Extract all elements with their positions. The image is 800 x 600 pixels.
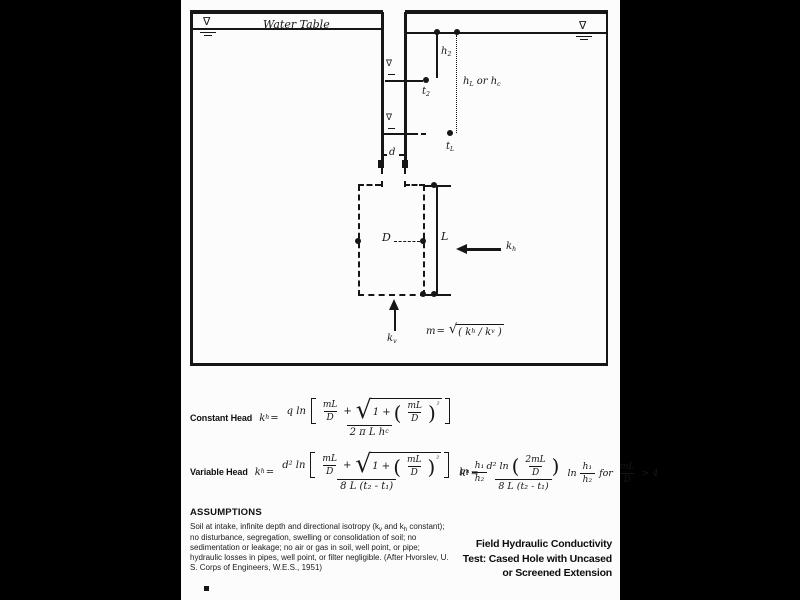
- radical: √ 1 + ( mLD ) ²: [355, 452, 441, 478]
- kv-arrow-shaft: [394, 310, 397, 331]
- water-level-icon: ∇: [579, 20, 586, 31]
- t2-level-line: [385, 80, 423, 82]
- hl-hc-dimension-line: [456, 35, 457, 133]
- tl-level-dash: [421, 133, 426, 135]
- scan-artifact-dot: [204, 586, 209, 591]
- ref-dot: [454, 29, 460, 35]
- kv-label: kv: [387, 333, 397, 345]
- radical-icon: √: [356, 398, 372, 422]
- length-label: L: [441, 230, 448, 243]
- t2-label: t2: [422, 86, 430, 98]
- kv-arrow-icon: [389, 299, 399, 310]
- casing-shoe-left: [378, 160, 384, 168]
- figure-title-line1: Field Hydraulic Conductivity: [430, 537, 612, 552]
- frame-bottom: [190, 363, 608, 366]
- bracket-left: [310, 452, 315, 478]
- tl-level-line: [384, 133, 418, 135]
- variable-head-equation: Variable Head kh = d² ln mLD + √ 1 + ( m…: [190, 448, 489, 496]
- water-level-icon: ∇: [203, 16, 210, 27]
- casing-wall-right: [404, 12, 407, 166]
- figure-title-line2: Test: Cased Hole with Uncased: [430, 552, 612, 567]
- anisotropy-equation: m = √ ( kh / kv ): [426, 324, 505, 338]
- constant-head-equation: Constant Head kh = q ln mLD + √ 1 + ( mL…: [190, 394, 457, 442]
- casing-wall-left: [381, 12, 384, 166]
- extension-box-top-left: [358, 184, 381, 186]
- d-tick: [382, 154, 387, 156]
- extension-box-bottom: [358, 294, 426, 296]
- h2-dimension-line: [436, 34, 438, 78]
- casing-shoe-right: [402, 160, 408, 168]
- frame-right: [606, 10, 609, 366]
- frame-top-right: [405, 10, 608, 14]
- assumptions-text: Soil at intake, infinite depth and direc…: [190, 522, 453, 573]
- figure-canvas: ∇ Water Table ∇ ∇ t2 h2 hL or hc ∇ tL d …: [0, 0, 800, 600]
- figure-title-line3: or Screened Extension: [430, 566, 612, 581]
- water-mark-dash: [388, 128, 395, 129]
- kh-label: kh: [506, 241, 516, 253]
- kh-arrow-icon: [456, 244, 467, 254]
- assumptions-header: ASSUMPTIONS: [190, 507, 262, 518]
- ref-dot: [423, 77, 429, 83]
- hl-hc-label: hL or hc: [463, 76, 501, 88]
- bracket-right: [445, 398, 450, 424]
- bracket-left: [311, 398, 316, 424]
- ref-dot: [447, 130, 453, 136]
- main-fraction: q ln mLD + √ 1 + ( mLD ) ² 2 π L hc: [284, 398, 455, 438]
- radical: √ ( kh / kv ): [449, 324, 504, 338]
- radical: √ 1 + ( mLD ) ²: [356, 398, 442, 424]
- main-fraction: d² ln mLD + √ 1 + ( mLD ) ² 8 L (t₂ - t₁…: [279, 452, 454, 492]
- d-label: d: [389, 147, 395, 158]
- length-dimension-line: [436, 186, 438, 295]
- bracket-right: [444, 452, 449, 478]
- variable-head-approx-equation: kh = d² ln ( 2mLD ) 8 L (t₂ - t₁) ln h₁h…: [460, 450, 658, 496]
- water-mark-dash: [388, 74, 395, 75]
- tl-label: tL: [446, 141, 454, 153]
- radical-icon: √: [355, 452, 371, 476]
- diameter-leader-line: [394, 241, 420, 242]
- water-mark-dash: [200, 32, 216, 34]
- ref-dot: [420, 238, 426, 244]
- water-table-label: Water Table: [263, 18, 330, 31]
- d-tick: [399, 154, 404, 156]
- main-fraction: d² ln ( 2mLD ) 8 L (t₂ - t₁): [484, 455, 564, 492]
- casing-dashed-extension-left: [381, 168, 383, 187]
- water-level-icon: ∇: [386, 114, 392, 123]
- kh-arrow-shaft: [467, 248, 501, 251]
- water-level-icon: ∇: [386, 60, 392, 69]
- variable-head-label: Variable Head: [190, 467, 248, 477]
- ref-dot: [431, 291, 437, 297]
- frame-left: [190, 10, 193, 366]
- extension-box-top-right: [404, 184, 425, 186]
- diameter-label: D: [382, 231, 391, 244]
- water-mark-dash: [576, 36, 592, 38]
- frame-top-left: [190, 10, 383, 14]
- ref-dot: [355, 238, 361, 244]
- water-mark-dash: [580, 39, 588, 40]
- h2-label: h2: [441, 46, 451, 58]
- length-bottom-tick: [423, 294, 451, 296]
- water-mark-dash: [204, 35, 212, 36]
- constant-head-label: Constant Head: [190, 413, 252, 423]
- figure-title: Field Hydraulic Conductivity Test: Cased…: [430, 537, 612, 581]
